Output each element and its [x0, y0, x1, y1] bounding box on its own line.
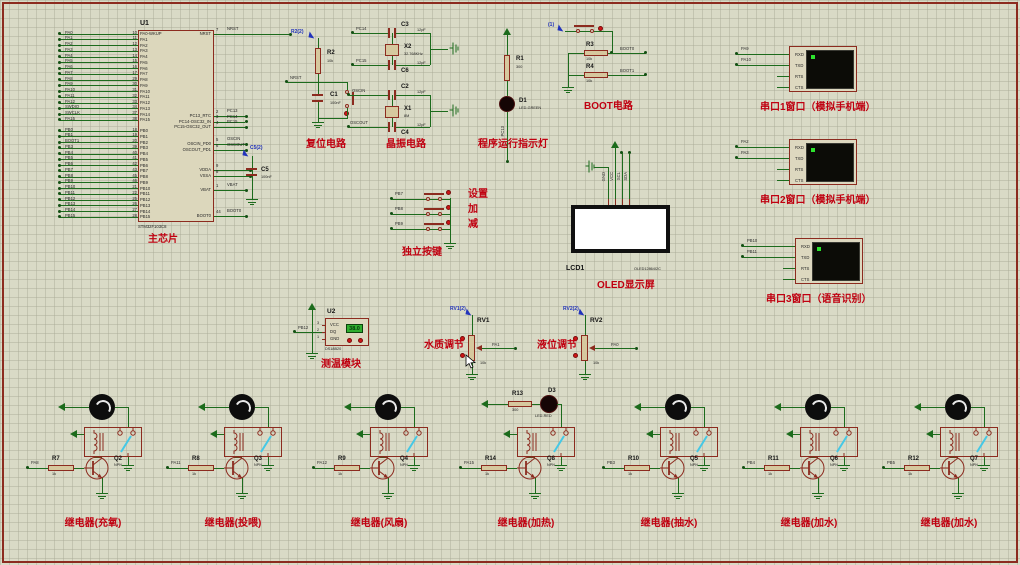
- wire: [984, 407, 985, 427]
- wire: [743, 246, 795, 247]
- wire: [532, 404, 540, 405]
- junction-dot: [644, 73, 647, 76]
- wire: [641, 407, 665, 408]
- wire: [128, 407, 129, 427]
- wire: [933, 434, 940, 435]
- wire: [115, 407, 129, 408]
- ground-symbol: [236, 490, 248, 499]
- push-button[interactable]: [426, 227, 430, 231]
- wire: [783, 279, 795, 280]
- wire: [351, 407, 375, 408]
- ground-symbol: [96, 490, 108, 499]
- button-actuator[interactable]: [424, 208, 444, 210]
- pot-adjust-down[interactable]: [573, 353, 578, 358]
- net-arrow: [70, 430, 77, 438]
- terminal-frame: RXD TXD RTS CTS: [789, 139, 857, 185]
- cursor-dot: [811, 148, 815, 152]
- wire: [568, 75, 569, 84]
- resistor-r2: [315, 48, 321, 74]
- net-arrow: [344, 403, 351, 411]
- wire: [650, 468, 660, 469]
- temp-ref: U2: [327, 309, 335, 316]
- wire: [318, 38, 319, 48]
- push-button[interactable]: [426, 197, 430, 201]
- chip-model: STM32F103C8: [138, 225, 166, 229]
- npn-transistor: [224, 454, 250, 482]
- terminal-screen: [806, 143, 854, 182]
- ground-symbol: [812, 490, 824, 499]
- wire: [565, 31, 612, 32]
- wire: [691, 407, 705, 408]
- serial-window: PA9 PA10 RXD TXD RTS CTS 串口1窗口（模拟手机端）: [735, 40, 875, 112]
- wire: [612, 31, 613, 53]
- wire: [360, 468, 370, 469]
- base-resistor: [904, 465, 930, 471]
- wire: [430, 111, 448, 112]
- motor-icon: [375, 394, 401, 420]
- wire: [396, 65, 430, 66]
- wire: [777, 180, 789, 181]
- indicator-dot: [347, 338, 352, 343]
- relay-caption: 继电器(加水): [738, 514, 880, 529]
- base-resistor: [481, 465, 507, 471]
- probe-icon: [242, 149, 249, 156]
- ground-symbol: [529, 490, 541, 499]
- wire: [793, 434, 800, 435]
- net-arrow: [58, 403, 65, 411]
- button-actuator[interactable]: [424, 193, 444, 195]
- probe-label: (1): [548, 23, 554, 28]
- wire: [396, 95, 430, 96]
- net-arrow: [646, 430, 653, 438]
- wire: [510, 434, 517, 435]
- push-button-row[interactable]: PB9 减: [390, 222, 540, 237]
- wire: [401, 407, 415, 408]
- switch-state-dot: [598, 26, 603, 31]
- push-button[interactable]: [426, 212, 430, 216]
- ground-symbol: [444, 240, 456, 249]
- motor-icon: [945, 394, 971, 420]
- indicator-dot: [358, 338, 363, 343]
- ground-symbol: [555, 462, 567, 471]
- temp-model: DS18B20: [325, 348, 341, 352]
- wire: [608, 53, 645, 54]
- ground-symbol: [382, 490, 394, 499]
- section-caption: 水质调节: [424, 341, 464, 351]
- chip-pin-vbat: 1VBAT: [214, 187, 248, 193]
- net-arrow: [914, 403, 921, 411]
- motor-icon: [665, 394, 691, 420]
- ground-symbol: [698, 462, 710, 471]
- ground-symbol: [262, 462, 274, 471]
- wire: [507, 112, 508, 160]
- section-caption: 串口3窗口（语音识别）: [766, 290, 872, 305]
- ground-symbol: [306, 350, 318, 359]
- net-arrow: [481, 400, 488, 408]
- base-resistor: [334, 465, 360, 471]
- wire: [392, 33, 393, 44]
- wire: [568, 75, 584, 76]
- pot-water-level: RV2(2) RV2 PA0 10k 液位调节: [563, 305, 653, 385]
- section-caption: 晶振电路: [386, 140, 426, 150]
- terminal-screen: [812, 242, 860, 281]
- npn-transistor: [800, 454, 826, 482]
- wire: [781, 407, 805, 408]
- serial-window: PA2 PA3 RXD TXD RTS CTS 串口2窗口（模拟手机端）: [735, 133, 875, 205]
- push-button[interactable]: [438, 227, 442, 231]
- junction-dot: [635, 347, 638, 350]
- wire: [388, 478, 389, 490]
- npn-transistor: [370, 454, 396, 482]
- wire: [74, 468, 84, 469]
- relay-module: PB5 R12 1k Q7 NPN 继电器(加水): [878, 390, 1020, 540]
- wire: [28, 468, 48, 469]
- junction-dot: [514, 347, 517, 350]
- net-arrow: [356, 430, 363, 438]
- ground-symbol: [122, 462, 134, 471]
- junction-dot: [644, 51, 647, 54]
- net-arrow: [198, 403, 205, 411]
- wire: [790, 468, 800, 469]
- push-button[interactable]: [438, 212, 442, 216]
- section-caption: 测温模块: [321, 360, 361, 370]
- net-arrow: [634, 403, 641, 411]
- wire: [318, 102, 319, 118]
- wire: [461, 468, 481, 469]
- net-arrow: [210, 430, 217, 438]
- npn-transistor: [517, 454, 543, 482]
- wire: [287, 82, 347, 83]
- ground-symbol: [672, 490, 684, 499]
- temp-reading: 38.0: [346, 324, 363, 333]
- wire: [414, 407, 415, 427]
- wire: [488, 404, 508, 405]
- relay-module: PA8 R7 1k Q2 NPN 继电器(充氧): [22, 390, 164, 540]
- wire: [604, 468, 624, 469]
- net-arrow: [926, 430, 933, 438]
- section-caption: 复位电路: [306, 140, 346, 150]
- cursor-dot: [811, 55, 815, 59]
- probe-label: R2(2): [291, 30, 304, 35]
- wire: [844, 407, 845, 427]
- wire: [217, 434, 224, 435]
- wire: [777, 169, 789, 170]
- relay-module: PB3 R10 1k Q5 NPN 继电器(抽水): [598, 390, 740, 540]
- wire: [205, 407, 229, 408]
- wire: [507, 35, 508, 55]
- ground-symbol: [952, 490, 964, 499]
- section-caption: 程序运行指示灯: [478, 140, 548, 150]
- wire: [295, 332, 325, 333]
- pin-stub: [322, 332, 326, 333]
- capacitor-c4: [388, 122, 396, 132]
- ground-symbol: [450, 43, 459, 55]
- wire: [629, 153, 630, 205]
- pot-water-quality: RV1(2) RV1 PA1 10k 水质调节: [450, 305, 540, 385]
- terminal-screen: [806, 50, 854, 89]
- chip-ref: U1: [140, 20, 149, 27]
- potentiometer[interactable]: [581, 335, 588, 361]
- wire: [737, 54, 789, 55]
- push-button-row[interactable]: PB8 加: [390, 207, 540, 222]
- wire: [507, 468, 517, 469]
- wire: [744, 468, 764, 469]
- probe-icon: [557, 24, 564, 31]
- wire: [777, 87, 789, 88]
- probe-label: RV1(2): [450, 307, 466, 312]
- wire: [65, 407, 89, 408]
- wire: [349, 127, 388, 128]
- chip-pin-row: PB1528: [58, 214, 138, 220]
- boot-switch[interactable]: [576, 29, 580, 33]
- ground-symbol: [562, 84, 574, 93]
- wire: [353, 65, 388, 66]
- wire: [314, 468, 334, 469]
- wire: [168, 468, 188, 469]
- oled-model: OLED12864I2C: [634, 268, 661, 272]
- wire: [958, 478, 959, 490]
- wire: [318, 74, 319, 94]
- button-actuator[interactable]: [424, 223, 444, 225]
- push-button-row[interactable]: PB7 设置: [390, 192, 540, 207]
- relay-caption: 继电器(加热): [455, 514, 597, 529]
- wire: [743, 257, 795, 258]
- chip-pin-nrst: 7NRST: [214, 31, 292, 37]
- net-arrow: [786, 430, 793, 438]
- wire: [363, 434, 370, 435]
- wire: [818, 478, 819, 490]
- wire: [349, 95, 388, 96]
- base-resistor: [48, 465, 74, 471]
- section-caption: OLED显示屏: [597, 281, 655, 291]
- wire: [312, 310, 313, 350]
- chip-pin-pc15: 4PC15: [214, 124, 248, 130]
- wire: [608, 75, 645, 76]
- resistor-r3: [584, 50, 608, 56]
- mouse-cursor: [465, 354, 476, 369]
- pin-stub: [322, 325, 326, 326]
- net-arrow: [774, 403, 781, 411]
- led-icon: [540, 395, 558, 413]
- ground-symbol: [408, 462, 420, 471]
- wire: [585, 361, 586, 371]
- wire: [777, 76, 789, 77]
- probe-icon: [308, 31, 315, 38]
- wire: [472, 315, 473, 335]
- oled-ref: LCD1: [566, 265, 584, 272]
- power-arrow: [611, 141, 619, 148]
- wire: [353, 33, 388, 34]
- button-function-label: 加: [468, 205, 478, 215]
- section-caption: 串口1窗口（模拟手机端）: [760, 98, 876, 113]
- section-caption: BOOT电路: [584, 102, 633, 112]
- base-resistor: [188, 465, 214, 471]
- chip-pin-row: PA1538: [58, 117, 138, 123]
- wire: [482, 348, 514, 349]
- wire: [930, 468, 940, 469]
- led-d1: [499, 96, 515, 112]
- wire: [884, 468, 904, 469]
- power-arrow: [308, 303, 316, 310]
- section-caption: 主芯片: [148, 235, 178, 245]
- crystal-x2: [385, 44, 399, 56]
- capacitor-c6: [388, 60, 396, 70]
- oled-screen: [571, 205, 670, 253]
- resistor-r1: [504, 55, 510, 81]
- ground-symbol: [579, 371, 591, 380]
- temp-body: VCC DQ GND 38.0: [325, 318, 369, 346]
- wire: [507, 81, 508, 96]
- npn-transistor: [84, 454, 110, 482]
- wire: [737, 65, 789, 66]
- motor-icon: [805, 394, 831, 420]
- npn-transistor: [660, 454, 686, 482]
- motor-icon: [89, 394, 115, 420]
- relay-module: R13 300 D3 LED-RED: [455, 390, 597, 540]
- wire: [831, 407, 845, 408]
- probe-label: C5(2): [250, 146, 263, 151]
- relay-module: PA12 R9 1k Q4 NPN 继电器(风扇): [308, 390, 450, 540]
- wire: [214, 468, 224, 469]
- probe-label: RV2(2): [563, 307, 579, 312]
- wire: [568, 53, 569, 75]
- relay-caption: 继电器(加水): [878, 514, 1020, 529]
- base-resistor: [764, 465, 790, 471]
- section-caption: 串口2窗口（模拟手机端）: [760, 191, 876, 206]
- relay-caption: 继电器(充氧): [22, 514, 164, 529]
- serial-window: PB10 PB11 RXD TXD RTS CTS 串口3窗口（语音识别）: [741, 232, 881, 304]
- capacitor-c5: [246, 168, 257, 176]
- chip-pin-boot0: 44BOOT0: [214, 213, 248, 219]
- section-caption: 独立按键: [402, 248, 442, 258]
- wire: [561, 404, 562, 427]
- wire: [737, 147, 789, 148]
- wire: [971, 407, 985, 408]
- wire: [430, 49, 448, 50]
- switch-actuator[interactable]: [574, 25, 594, 27]
- wire: [737, 158, 789, 159]
- motor-icon: [229, 394, 255, 420]
- crystal-x1: [385, 106, 399, 118]
- chip-pa-pins: PA010PA111PA212PA313PA414PA515PA616PA717…: [58, 31, 138, 123]
- section-caption: 液位调节: [537, 341, 577, 351]
- wire: [783, 268, 795, 269]
- relay-caption: 继电器(投喂): [162, 514, 304, 529]
- relay-caption: 继电器(风扇): [308, 514, 450, 529]
- wire: [568, 53, 584, 54]
- wire: [594, 167, 608, 168]
- npn-transistor: [940, 454, 966, 482]
- wire: [392, 95, 393, 106]
- wire: [102, 478, 103, 490]
- boot-switch[interactable]: [590, 29, 594, 33]
- wire: [242, 478, 243, 490]
- wire: [268, 407, 269, 427]
- chip-pa-names: PA0-WKUPPA1PA2PA3PA4PA5PA6PA7PA8PA9PA10P…: [140, 31, 180, 123]
- button-function-label: 减: [468, 220, 478, 230]
- wire: [252, 156, 253, 196]
- ground-symbol: [246, 196, 258, 205]
- wire: [347, 82, 348, 90]
- wire: [585, 315, 586, 335]
- ground-symbol: [450, 105, 459, 117]
- base-resistor: [624, 465, 650, 471]
- wire: [653, 434, 660, 435]
- button-function-label: 设置: [468, 190, 488, 200]
- junction-dot: [506, 160, 509, 163]
- ground-symbol: [312, 119, 324, 128]
- wire: [704, 407, 705, 427]
- wire: [347, 108, 348, 118]
- terminal-frame: RXD TXD RTS CTS: [789, 46, 857, 92]
- relay-module: PA11 R8 1k Q3 NPN 继电器(投喂): [162, 390, 304, 540]
- wire: [77, 434, 84, 435]
- power-arrow: [503, 28, 511, 35]
- cursor-dot: [817, 247, 821, 251]
- ground-symbol: [978, 462, 990, 471]
- terminal-frame: RXD TXD RTS CTS: [795, 238, 863, 284]
- wire: [255, 407, 269, 408]
- push-button[interactable]: [438, 197, 442, 201]
- schematic-canvas: U1 NRST PC13_RTC PC14-OSC32_IN PC15-OSC3…: [0, 0, 1020, 565]
- relay-caption: 继电器(抽水): [598, 514, 740, 529]
- relay-module: PB4 R11 1k Q6 NPN 继电器(加水): [738, 390, 880, 540]
- wire: [678, 478, 679, 490]
- wire: [396, 127, 430, 128]
- chip-pb-pins: PB018PB119BOOT120PB339PB440PB541PB642PB7…: [58, 128, 138, 220]
- wire: [450, 198, 451, 240]
- button-state-dot: [446, 190, 451, 195]
- chip-pb-names: PB0PB1PB2PB3PB4PB5PB6PB7PB8PB9PB10PB11PB…: [140, 128, 180, 220]
- wire: [921, 407, 945, 408]
- wire: [535, 478, 536, 490]
- pin-stub: [322, 339, 326, 340]
- capacitor-c1: [312, 94, 323, 102]
- net-arrow: [503, 430, 510, 438]
- button-rows: PB7 设置 PB8 加: [390, 192, 540, 237]
- wire: [396, 33, 430, 34]
- resistor: [508, 401, 532, 407]
- ground-symbol: [466, 371, 478, 380]
- wire: [595, 348, 635, 349]
- ground-symbol: [838, 462, 850, 471]
- resistor-r4: [584, 72, 608, 78]
